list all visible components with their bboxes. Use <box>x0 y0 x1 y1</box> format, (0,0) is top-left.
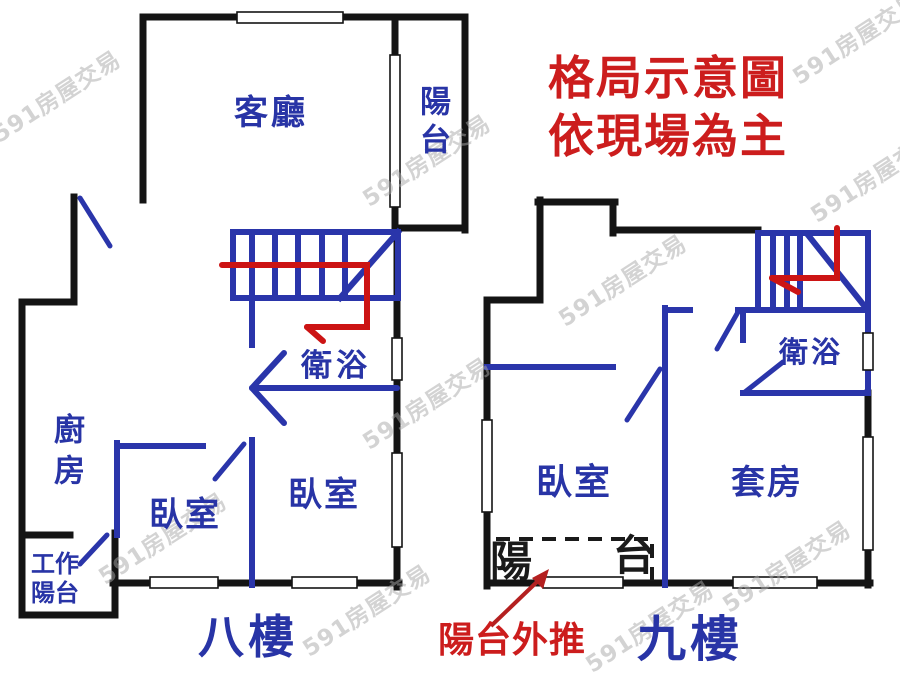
old-balcony-char-right: 台 <box>613 535 655 577</box>
old-balcony-char-left: 陽 <box>490 541 532 583</box>
room-label-work-balcony-8f: 工作 陽台 <box>31 550 79 609</box>
stairs-9f <box>758 233 868 310</box>
annotation-balcony-pushed-out: 陽台外推 <box>438 623 586 659</box>
room-label-living-8f: 客廳 <box>234 96 308 130</box>
room-label-kitchen-8f: 廚房 <box>50 413 81 495</box>
room-label-bedroom-9f: 臥室 <box>536 465 612 501</box>
plan-title-line1: 格局示意圖 <box>548 50 788 108</box>
room-label-suite-9f: 套房 <box>731 466 803 500</box>
room-label-bathroom-9f: 衛浴 <box>779 338 843 367</box>
floor-plan-canvas: 591房屋交易 591房屋交易 591房屋交易 591房屋交易 591房屋交易 … <box>0 0 900 675</box>
room-label-balcony-8f: 陽台 <box>416 85 447 161</box>
plan-title: 格局示意圖 依現場為主 <box>548 50 788 166</box>
work-balcony-line1: 工作 <box>31 550 79 579</box>
room-label-bedroom-left-8f: 臥室 <box>149 498 221 532</box>
floor-label-9f: 九樓 <box>637 615 743 664</box>
floor-label-8f: 八樓 <box>198 614 298 660</box>
room-label-bedroom-right-8f: 臥室 <box>288 478 360 512</box>
work-balcony-line2: 陽台 <box>31 579 79 608</box>
room-label-bathroom-8f: 衛浴 <box>301 351 371 382</box>
door-swings-9f <box>627 312 783 420</box>
plan-title-line2: 依現場為主 <box>548 108 788 166</box>
